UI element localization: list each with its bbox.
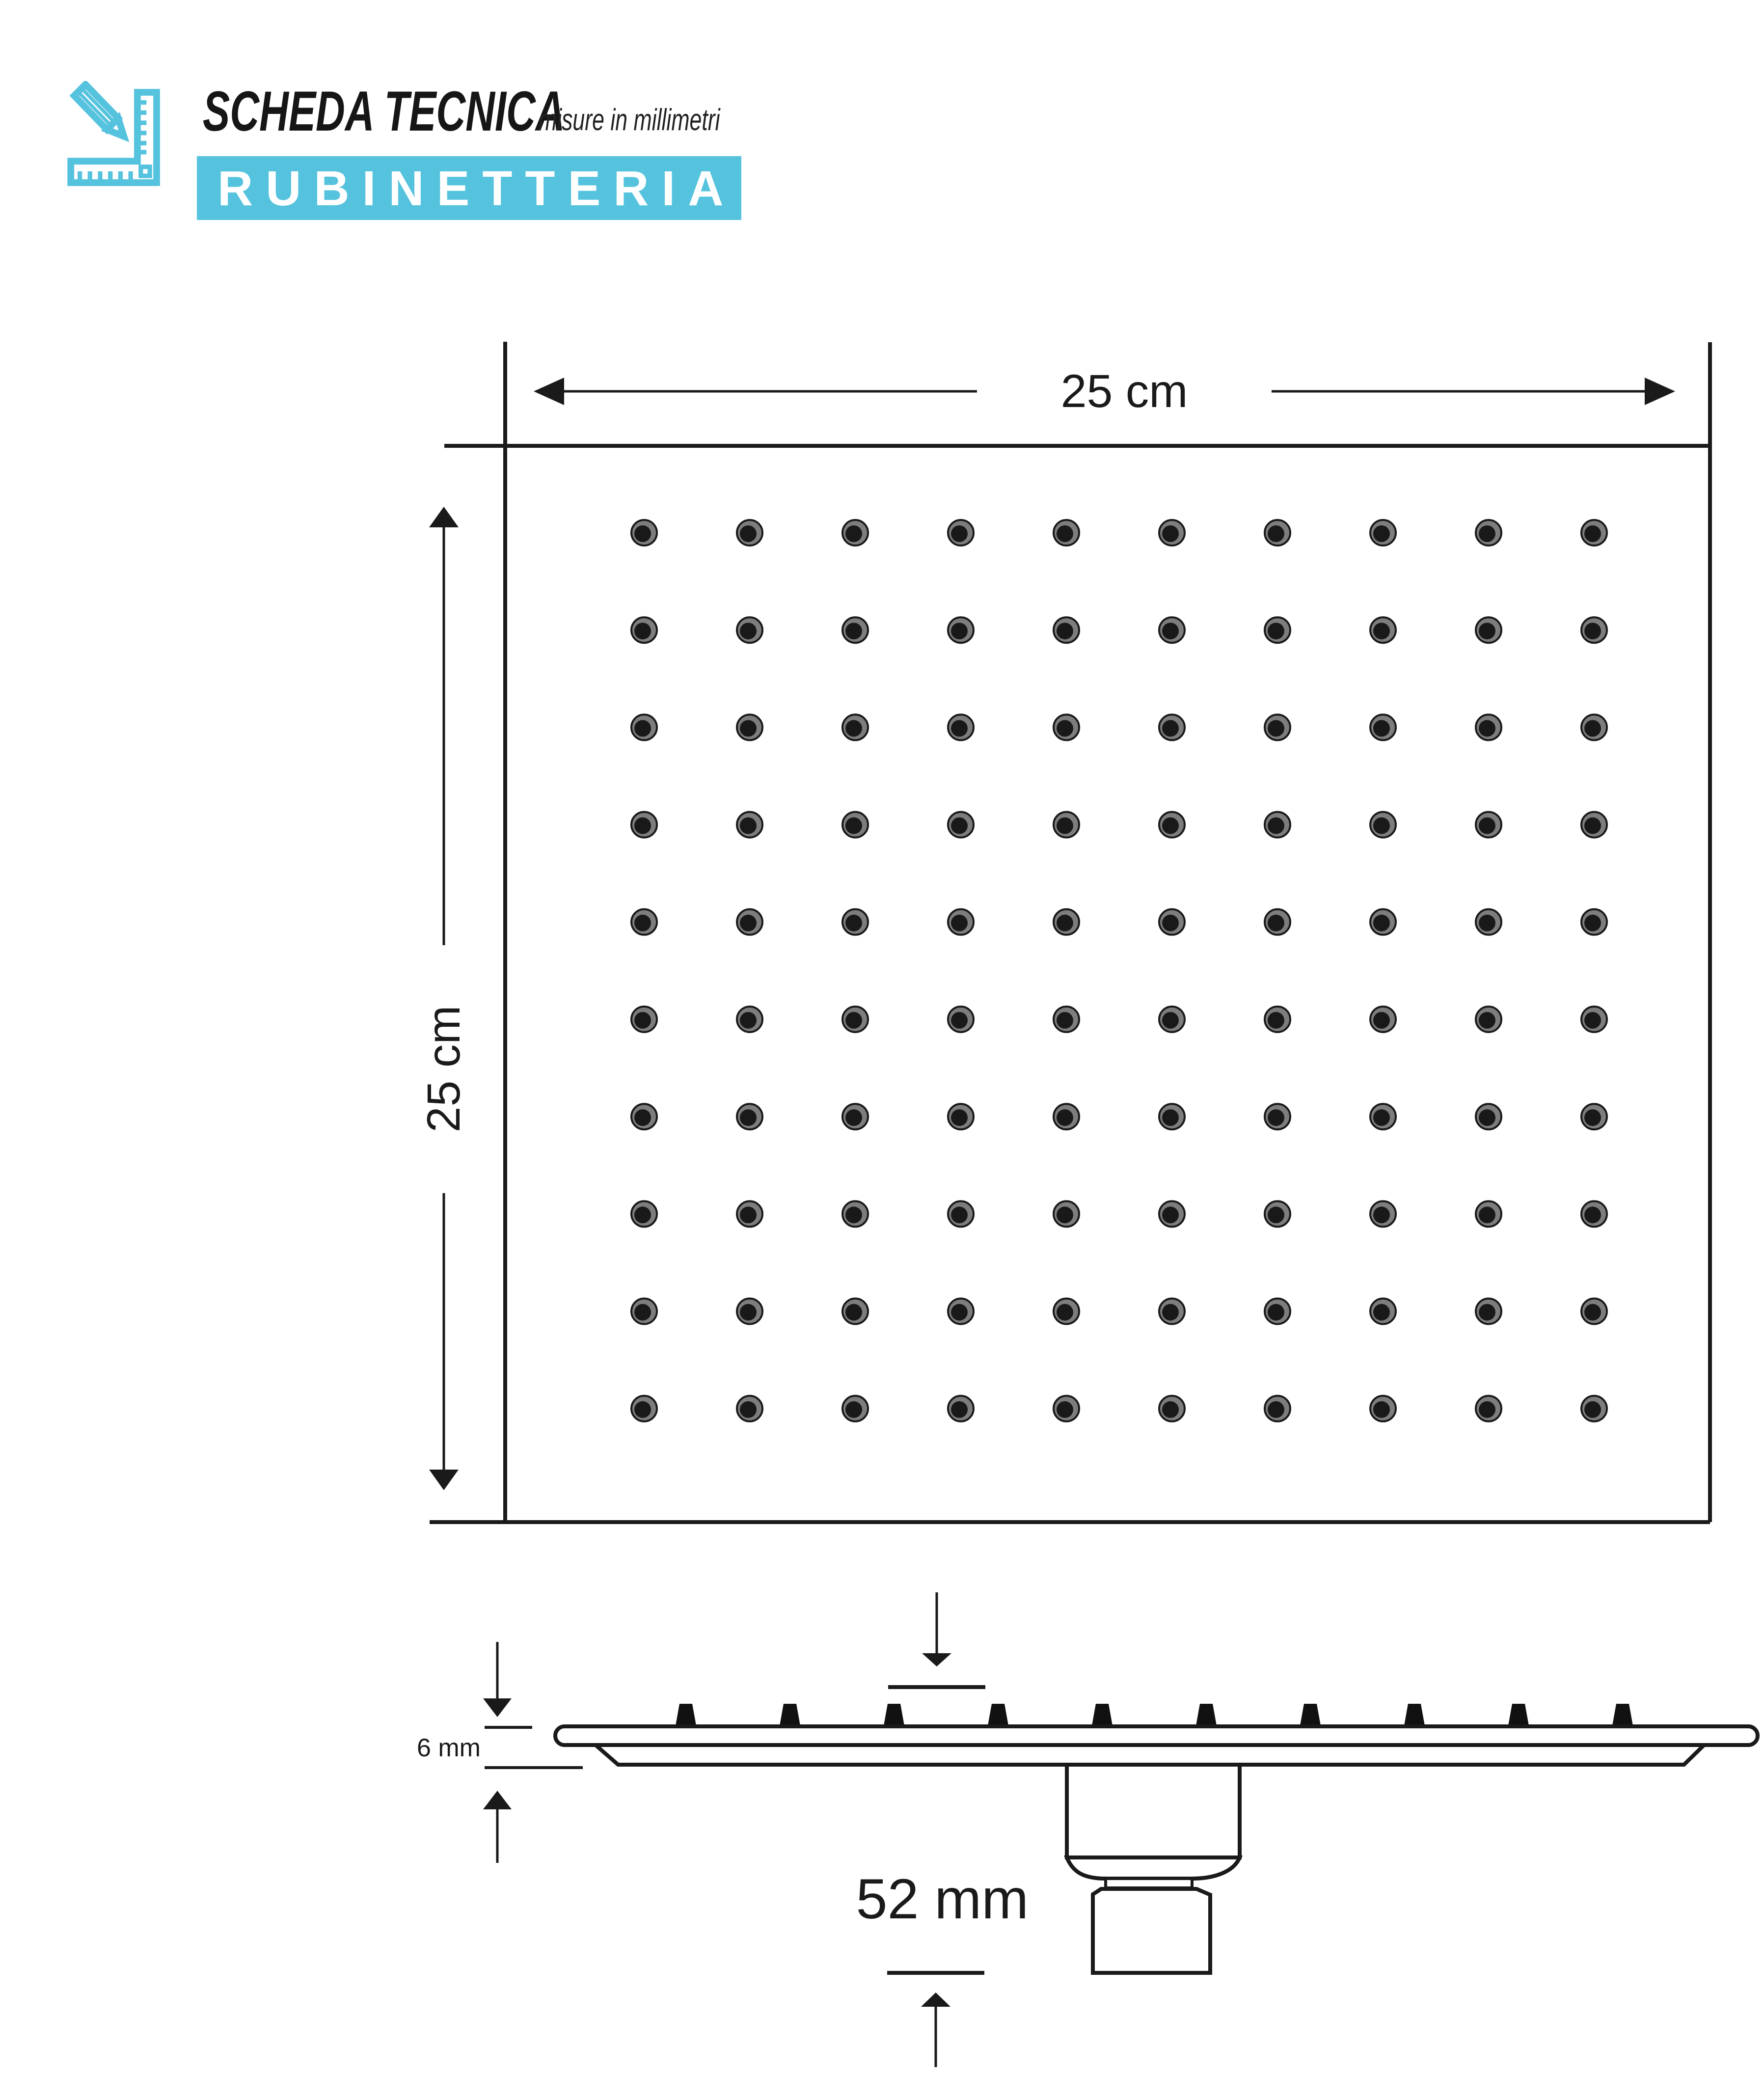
nozzle-hole-center bbox=[1479, 720, 1495, 737]
nozzle-hole-center bbox=[1373, 915, 1390, 931]
nozzle-hole-center bbox=[740, 915, 757, 931]
width-dimension: 25 cm bbox=[534, 365, 1675, 417]
nozzle-hole-center bbox=[845, 1401, 862, 1418]
nozzle-hole-center bbox=[1373, 720, 1390, 737]
nozzle-hole-center bbox=[634, 1012, 651, 1029]
nozzle-hole-center bbox=[634, 1206, 651, 1223]
nozzle-hole-center bbox=[634, 1401, 651, 1418]
nozzle-hole-center bbox=[1162, 525, 1179, 542]
nozzle-hole-center bbox=[1584, 1304, 1601, 1321]
nozzle-hole-center bbox=[845, 525, 862, 542]
nozzle-hole-center bbox=[845, 1109, 862, 1126]
nozzle-hole-center bbox=[1584, 623, 1601, 639]
nozzle-hole-center bbox=[1268, 525, 1284, 542]
connector-shoulder bbox=[1067, 1857, 1240, 1879]
arrow-up-icon bbox=[429, 507, 459, 527]
nozzle-hole-center bbox=[951, 623, 968, 639]
nozzle-hole-center bbox=[1584, 1206, 1601, 1223]
arrow-right-icon bbox=[1645, 378, 1675, 405]
connector-cylinder bbox=[1093, 1889, 1210, 1973]
nozzle-hole-center bbox=[634, 525, 651, 542]
nozzle-hole-center bbox=[740, 720, 757, 737]
nozzle-hole-center bbox=[1479, 1304, 1495, 1321]
thickness-dimension-label: 6 mm bbox=[417, 1734, 481, 1762]
nozzle-hole-center bbox=[1373, 1109, 1390, 1126]
nozzle-hole-center bbox=[1057, 720, 1073, 737]
nozzle-hole-center bbox=[1057, 623, 1073, 639]
arrow-up-icon bbox=[483, 1791, 512, 1809]
nozzle-hole-center bbox=[634, 818, 651, 834]
connector-dimension: 52 mm bbox=[856, 1592, 1029, 2067]
nozzle-hole-center bbox=[951, 915, 968, 931]
nozzle-hole-center bbox=[1057, 1304, 1073, 1321]
arrow-down-icon bbox=[922, 1653, 951, 1666]
nozzle-hole-center bbox=[1268, 1109, 1284, 1126]
nozzle-hole-center bbox=[845, 1012, 862, 1029]
nozzle-hole-center bbox=[634, 1109, 651, 1126]
nozzle-hole-center bbox=[1162, 818, 1179, 834]
nozzle-hole-center bbox=[1162, 623, 1179, 639]
nozzle-hole-center bbox=[1268, 1012, 1284, 1029]
nozzle-hole-center bbox=[1373, 1012, 1390, 1029]
nozzle-hole-center bbox=[634, 915, 651, 931]
nozzle-hole-center bbox=[1162, 1401, 1179, 1418]
nozzle-hole-center bbox=[740, 525, 757, 542]
nozzle-hole-center bbox=[1162, 1109, 1179, 1126]
nozzle-hole-center bbox=[1479, 1401, 1495, 1418]
nozzle-hole-center bbox=[1479, 1206, 1495, 1223]
nozzle-hole-center bbox=[1584, 1109, 1601, 1126]
nozzle-hole-center bbox=[1373, 1401, 1390, 1418]
nozzle-hole-center bbox=[1584, 915, 1601, 931]
category-banner: RUBINETTERIA bbox=[197, 156, 741, 220]
page-title: SCHEDA TECNICA bbox=[203, 83, 565, 140]
nozzle-hole-center bbox=[740, 1304, 757, 1321]
plate-profile bbox=[555, 1726, 1758, 1745]
nozzle-hole-center bbox=[1268, 623, 1284, 639]
arrow-up-icon bbox=[921, 1992, 950, 2007]
nozzle-hole-center bbox=[1057, 1206, 1073, 1223]
nozzle-hole-center bbox=[951, 1012, 968, 1029]
nozzle-hole-center bbox=[634, 623, 651, 639]
nozzle-hole-center bbox=[845, 720, 862, 737]
nozzle-hole-center bbox=[1479, 623, 1495, 639]
nozzle-hole-center bbox=[1057, 915, 1073, 931]
nozzle-grid bbox=[631, 520, 1607, 1421]
nozzle-hole-center bbox=[1479, 1012, 1495, 1029]
nozzle-hole-center bbox=[951, 1401, 968, 1418]
nozzle-hole-center bbox=[1479, 915, 1495, 931]
nozzle-hole-center bbox=[951, 1109, 968, 1126]
nozzle-hole-center bbox=[951, 720, 968, 737]
arrow-down-icon bbox=[429, 1470, 459, 1490]
nozzle-hole-center bbox=[1373, 818, 1390, 834]
nozzle-hole-center bbox=[845, 1304, 862, 1321]
nozzle-hole-center bbox=[1268, 1304, 1284, 1321]
nozzle-hole-center bbox=[845, 915, 862, 931]
nozzle-hole-center bbox=[1268, 915, 1284, 931]
nozzle-hole-center bbox=[1162, 1012, 1179, 1029]
top-view-drawing: 25 cm 25 cm bbox=[418, 342, 1710, 1522]
nozzle-hole-center bbox=[1373, 525, 1390, 542]
nozzle-hole-center bbox=[1057, 525, 1073, 542]
nozzle-hole-center bbox=[1162, 1206, 1179, 1223]
connector-stem bbox=[1067, 1765, 1240, 1857]
nozzle-hole-center bbox=[1162, 720, 1179, 737]
page-subtitle: misure in millimetri bbox=[539, 105, 720, 136]
nozzle-hole-center bbox=[740, 1012, 757, 1029]
arrow-left-icon bbox=[534, 378, 564, 405]
side-view-drawing: 6 mm 52 mm bbox=[417, 1592, 1758, 2067]
nozzle-hole-center bbox=[951, 818, 968, 834]
nozzle-hole-center bbox=[740, 1401, 757, 1418]
nozzle-hole-center bbox=[1373, 1304, 1390, 1321]
nozzle-hole-center bbox=[1584, 720, 1601, 737]
nozzle-hole-center bbox=[1268, 1206, 1284, 1223]
nozzle-hole-center bbox=[1479, 1109, 1495, 1126]
plate-skirt bbox=[595, 1745, 1705, 1765]
arrow-down-icon bbox=[483, 1698, 512, 1717]
nozzle-hole-center bbox=[845, 1206, 862, 1223]
nozzle-hole-center bbox=[1268, 1401, 1284, 1418]
nozzle-hole-center bbox=[740, 1206, 757, 1223]
nozzle-hole-center bbox=[845, 818, 862, 834]
nozzle-hole-center bbox=[1479, 525, 1495, 542]
nozzle-hole-center bbox=[1162, 915, 1179, 931]
nozzle-hole-center bbox=[1584, 818, 1601, 834]
nozzle-hole-center bbox=[951, 1206, 968, 1223]
nozzle-hole-center bbox=[845, 623, 862, 639]
thickness-dimension: 6 mm bbox=[417, 1642, 583, 1863]
nozzle-hole-center bbox=[1057, 1109, 1073, 1126]
nozzle-hole-center bbox=[1268, 720, 1284, 737]
connector-dimension-label: 52 mm bbox=[856, 1868, 1029, 1931]
nozzle-hole-center bbox=[1162, 1304, 1179, 1321]
technical-drawing: 25 cm 25 cm bbox=[0, 0, 1764, 2074]
connector-groove-ring bbox=[1106, 1879, 1192, 1888]
nozzle-hole-center bbox=[1373, 623, 1390, 639]
nozzle-hole-center bbox=[1057, 818, 1073, 834]
nozzle-hole-center bbox=[1584, 1401, 1601, 1418]
pencil-ruler-icon bbox=[66, 81, 179, 194]
nozzle-hole-center bbox=[740, 623, 757, 639]
height-dimension-label: 25 cm bbox=[418, 1006, 470, 1133]
nozzle-hole-center bbox=[1584, 525, 1601, 542]
nozzle-hole-center bbox=[740, 1109, 757, 1126]
nozzle-hole-center bbox=[1268, 818, 1284, 834]
nozzle-hole-center bbox=[1373, 1206, 1390, 1223]
nozzle-hole-center bbox=[740, 818, 757, 834]
nozzle-hole-center bbox=[1057, 1012, 1073, 1029]
width-dimension-label: 25 cm bbox=[1061, 365, 1188, 417]
nozzle-hole-center bbox=[1584, 1012, 1601, 1029]
nozzle-hole-center bbox=[1479, 818, 1495, 834]
nozzle-hole-center bbox=[634, 1304, 651, 1321]
height-dimension: 25 cm bbox=[418, 507, 470, 1490]
nozzle-hole-center bbox=[951, 1304, 968, 1321]
nozzle-hole-center bbox=[634, 720, 651, 737]
nozzle-hole-center bbox=[1057, 1401, 1073, 1418]
nozzle-hole-center bbox=[951, 525, 968, 542]
